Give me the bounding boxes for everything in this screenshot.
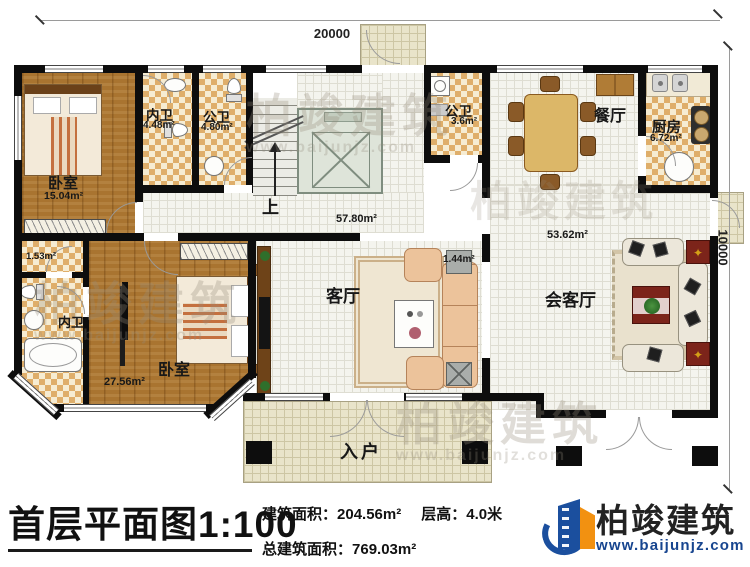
dining-chair	[540, 76, 560, 92]
dimension-tick	[713, 9, 723, 19]
room-label: 入户	[340, 438, 382, 464]
window	[265, 393, 323, 401]
room-area: 53.62m²	[547, 229, 588, 241]
dining-chair	[580, 136, 596, 156]
wall	[424, 72, 431, 160]
column	[556, 446, 582, 466]
wardrobe	[180, 243, 248, 260]
stove	[691, 106, 711, 144]
stairs-up-arrow-icon	[269, 142, 281, 152]
door-arc	[450, 163, 478, 191]
toilet-bowl	[227, 78, 241, 94]
bed-pillow	[33, 97, 61, 114]
door-opening	[144, 233, 178, 241]
bed	[176, 276, 256, 364]
dimension-tick	[723, 484, 733, 494]
burner-icon	[694, 127, 709, 142]
bed-pillow	[69, 97, 97, 114]
door-arc	[606, 417, 639, 450]
star-icon: ✦	[693, 348, 703, 362]
building-area-value: 204.56m²	[337, 506, 401, 523]
drain-dot	[678, 81, 683, 86]
room-area: 4.80m²	[201, 122, 233, 133]
lightwell-beam	[324, 112, 362, 122]
wall	[14, 233, 360, 241]
total-area-line: 总建筑面积：769.03m²	[262, 538, 416, 559]
stairs-up-label: 上	[262, 193, 279, 218]
door-opening	[46, 272, 72, 278]
column	[692, 446, 718, 466]
room-area: 15.04m²	[44, 190, 83, 202]
washer-drum-icon	[434, 80, 446, 92]
kitchen-sink	[652, 74, 668, 92]
door-opening	[450, 155, 478, 163]
drain-dot	[658, 81, 663, 86]
room-label: 客厅	[326, 282, 360, 307]
tv	[259, 297, 270, 349]
toilet-tank	[36, 284, 44, 300]
door-opening	[362, 65, 424, 73]
top-dimension-line	[40, 20, 720, 21]
top-dimension-label: 20000	[300, 26, 364, 41]
plant-icon	[260, 381, 270, 391]
room-area: 1.44m²	[443, 254, 475, 265]
floor-height-value: 4.0米	[466, 506, 502, 523]
sink	[24, 310, 44, 330]
shoe-cabinet	[446, 362, 472, 386]
building-area-label: 建筑面积：	[262, 506, 337, 523]
sideboard	[596, 74, 634, 96]
page-title: 首层平面图1:100	[8, 494, 298, 548]
brand-website: www.baijunjz.com	[596, 537, 745, 554]
sink	[204, 156, 224, 176]
burner-icon	[694, 110, 709, 125]
door-arc	[639, 417, 672, 450]
bed-pillow	[231, 285, 249, 317]
total-area-value: 769.03m²	[352, 541, 416, 558]
bed-blanket	[51, 117, 77, 175]
toilet	[20, 284, 44, 300]
sofa	[678, 262, 708, 346]
right-dimension-line	[729, 46, 730, 490]
window	[266, 65, 326, 73]
end-table: ✦	[686, 240, 710, 264]
window	[45, 65, 103, 73]
wall	[122, 282, 128, 340]
floor-height-label: 层高：	[421, 506, 466, 523]
bathtub	[24, 338, 82, 372]
bed	[24, 84, 102, 176]
hall-floor	[297, 73, 382, 108]
logo-tower-blue	[558, 499, 580, 549]
total-area-label: 总建筑面积：	[262, 541, 352, 558]
stairs-up-arrow-icon	[274, 152, 276, 196]
room-area: 6.72m²	[650, 133, 682, 144]
door-opening	[638, 136, 646, 176]
logo-tower-orange	[580, 507, 595, 549]
dining-table	[524, 94, 578, 172]
room-area: 1.53m²	[26, 251, 56, 262]
window	[148, 65, 184, 73]
brand-name: 柏竣建筑	[596, 494, 736, 542]
end-table: ✦	[686, 342, 710, 366]
window	[64, 404, 206, 412]
dot-decor	[407, 311, 413, 317]
room-label: 会客厅	[545, 286, 596, 311]
washing-machine	[430, 76, 450, 96]
room-area: 27.56m²	[104, 376, 145, 388]
room-label: 卧室	[158, 356, 190, 380]
toilet-tank	[226, 94, 242, 102]
floor-plan-page: 20000 10000	[0, 0, 750, 567]
window	[648, 65, 702, 73]
wall	[248, 238, 256, 378]
passage-opening	[482, 262, 490, 358]
dining-chair	[540, 174, 560, 190]
bed-blanket	[183, 303, 227, 339]
coffee-table	[394, 300, 434, 348]
room-area: 57.80m²	[336, 213, 377, 225]
column	[462, 441, 488, 464]
armchair	[404, 248, 442, 282]
dot-decor	[417, 311, 423, 317]
bathtub-basin	[29, 343, 77, 367]
kitchen-sink	[672, 74, 688, 92]
reception-coffee-table	[632, 286, 670, 324]
wall	[638, 185, 718, 193]
door-opening	[224, 185, 252, 193]
dining-chair	[508, 102, 524, 122]
bed-pillow	[231, 325, 249, 357]
corridor-floor	[143, 193, 424, 233]
title-underline	[8, 549, 252, 552]
building-area-line: 建筑面积：204.56m²层高：4.0米	[262, 503, 502, 524]
wall	[192, 72, 199, 190]
plant-icon	[644, 298, 660, 314]
plant-icon	[260, 251, 270, 261]
window	[406, 393, 462, 401]
dimension-tick	[723, 41, 733, 51]
toilet-bowl	[20, 285, 36, 299]
right-dimension-label: 10000	[716, 228, 731, 268]
armchair	[406, 356, 444, 390]
column	[246, 441, 272, 464]
room-area: 4.48m²	[143, 120, 175, 131]
star-icon: ✦	[693, 246, 703, 260]
flower-decor	[409, 327, 421, 339]
dining-chair	[508, 136, 524, 156]
window	[497, 65, 583, 73]
toilet	[226, 78, 242, 102]
brand-logo-icon	[542, 497, 594, 559]
tv-cabinet	[257, 246, 271, 396]
window	[14, 96, 22, 160]
room-label: 内卫	[58, 312, 84, 331]
room-area: 3.6m²	[451, 116, 477, 127]
window	[203, 65, 241, 73]
bed-headboard	[25, 85, 101, 94]
room-label: 餐厅	[594, 102, 626, 126]
passage-opening	[482, 198, 490, 234]
